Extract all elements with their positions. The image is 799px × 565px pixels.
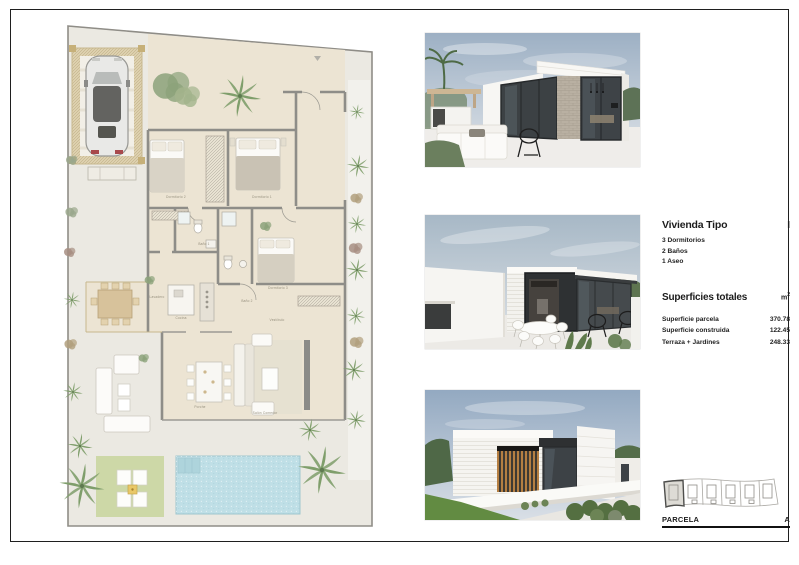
dark-opening (425, 303, 451, 329)
surface-label: Superficie parcela (662, 314, 719, 326)
parcela-site-diagram (662, 476, 780, 512)
bed-dormitorio2 (150, 140, 184, 192)
surface-value: 370.78 (770, 314, 790, 326)
info-panel: Vivienda Tipo I 3 Dormitorios 2 Baños 1 … (662, 219, 790, 348)
room-label-vestibulo: Vestíbulo (270, 319, 285, 322)
left-tree (425, 439, 453, 486)
storage-unit (88, 167, 136, 180)
room-label-cocina: Cocina (175, 317, 186, 320)
tv-unit (304, 340, 310, 410)
bed-dormitorio3 (258, 238, 294, 282)
wood-slats (497, 446, 539, 492)
living-room (234, 334, 310, 415)
surfaces-table: Superficie parcela 370.78 Superficie con… (662, 314, 790, 349)
room-label-lavadero: Lavadero (150, 296, 165, 299)
parcela-label: PARCELA (662, 515, 699, 524)
car-icon (84, 56, 130, 156)
surfaces-title: Superficies totales (662, 292, 747, 303)
surface-row: Terraza + Jardines 248.33 (662, 337, 790, 349)
surfaces-unit: m2 (781, 292, 790, 301)
planter-wall (631, 297, 640, 349)
room-label-porche: Porche (194, 406, 205, 409)
parcela-block: PARCELA A (662, 476, 790, 528)
garage (69, 45, 145, 180)
pool (176, 456, 300, 514)
roof-fascia (539, 438, 581, 447)
room-label-bano-2: Baño 2 (241, 300, 252, 303)
villa (507, 267, 637, 332)
stone-pillar (557, 76, 581, 139)
dining-table (187, 362, 231, 402)
floor-plan (58, 14, 378, 534)
feature-toilet: 1 Aseo (662, 257, 790, 268)
room-label-salon-comedor: Salón Comedor (253, 412, 278, 415)
drawing-sheet: Dormitorio 2 Dormitorio 1 Dormitorio 3 B… (0, 0, 799, 565)
room-label-dormitorio-1: Dormitorio 1 (252, 196, 272, 199)
render-photo-terrace (425, 33, 640, 167)
surface-row: Superficie construida 122.45 (662, 325, 790, 337)
parcela-mark: A (784, 515, 790, 524)
side-tree (623, 87, 640, 121)
lawn (96, 456, 164, 517)
villa-type-title: Vivienda Tipo (662, 219, 727, 231)
surface-value: 248.33 (770, 337, 790, 349)
feature-list: 3 Dormitorios 2 Baños 1 Aseo (662, 236, 790, 268)
surface-label: Terraza + Jardines (662, 337, 720, 349)
villa-type-mark: I (787, 220, 790, 231)
render-photo-street (425, 390, 640, 520)
feature-bedrooms: 3 Dormitorios (662, 236, 790, 247)
bed-dormitorio1 (230, 138, 286, 190)
room-label-dormitorio-2: Dormitorio 2 (166, 196, 186, 199)
surface-label: Superficie construida (662, 325, 729, 337)
room-label-bano-1: Baño 1 (198, 243, 209, 246)
pergola (427, 89, 481, 94)
surface-value: 122.45 (770, 325, 790, 337)
room-label-dormitorio-3: Dormitorio 3 (268, 287, 288, 290)
render-photo-dining (425, 215, 640, 349)
parcela-underline (662, 526, 790, 528)
feature-bathrooms: 2 Baños (662, 247, 790, 258)
highlighted-plot (664, 480, 684, 507)
surface-row: Superficie parcela 370.78 (662, 314, 790, 326)
